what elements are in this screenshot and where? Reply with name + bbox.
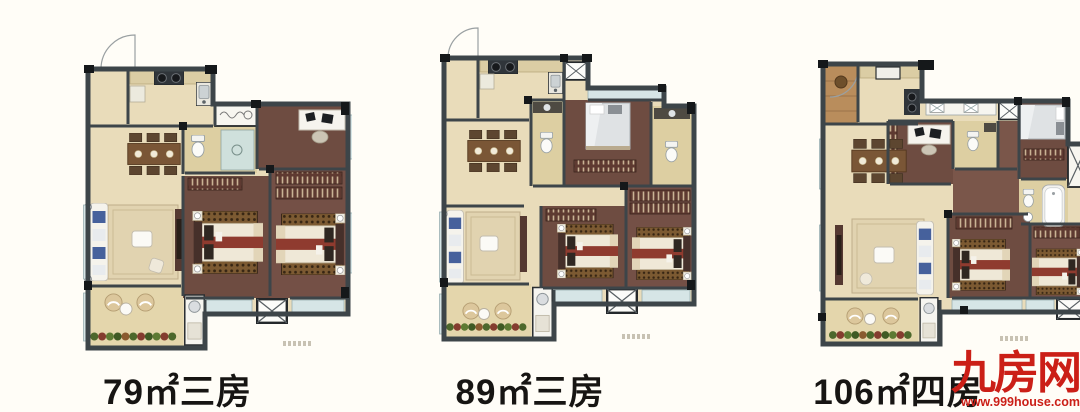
wardrobe	[630, 190, 690, 201]
floorplan-comparison-image: 79㎡三房 89㎡三房 106㎡四房 九房网 www.999house.com	[0, 0, 1080, 412]
elevator-shaft	[1057, 299, 1080, 319]
bed	[952, 239, 1010, 290]
side-table	[120, 303, 132, 315]
pouf	[860, 273, 872, 285]
bed	[276, 214, 345, 275]
bathtub	[1042, 185, 1065, 227]
toilet	[1023, 189, 1034, 207]
elevator-shaft	[607, 289, 637, 313]
laundry-closet	[185, 295, 204, 345]
wardrobe	[188, 178, 242, 190]
dining-set	[468, 130, 521, 172]
floorplan-89	[436, 26, 702, 342]
sofa	[446, 210, 463, 284]
window	[642, 290, 690, 302]
toilet	[967, 131, 978, 150]
entry-door-arc	[448, 28, 478, 58]
laundry-closet	[533, 287, 552, 337]
floorplan-79-drawing	[80, 21, 352, 355]
plan-caption-89: 89㎡三房	[390, 364, 670, 412]
plants	[446, 323, 526, 330]
bed	[632, 227, 691, 280]
door-mat	[835, 76, 847, 88]
sofa	[90, 203, 108, 281]
bed	[557, 224, 618, 278]
floorplan-106-drawing	[818, 35, 1080, 350]
laptop	[929, 128, 941, 139]
wardrobe	[1034, 227, 1080, 238]
hallway	[953, 169, 1019, 214]
wardrobe	[546, 209, 596, 221]
toilet	[540, 132, 552, 153]
dining-set	[128, 133, 181, 175]
laundry-closet	[920, 298, 938, 344]
elevator-shaft	[999, 103, 1020, 120]
laptop	[321, 113, 333, 124]
side-table	[479, 309, 490, 320]
office-chair	[312, 131, 328, 143]
side-table	[865, 314, 876, 325]
wardrobe	[574, 160, 636, 172]
fridge	[130, 86, 145, 102]
elevator-shaft	[565, 62, 587, 80]
wardrobe	[276, 187, 342, 199]
watermark-url: www.999house.com	[940, 396, 1080, 409]
shower	[221, 130, 254, 170]
floorplan-89-drawing	[436, 26, 702, 342]
floorplan-79	[80, 21, 352, 355]
balcony-chair	[847, 308, 863, 324]
bed	[1032, 249, 1080, 295]
stove	[488, 60, 518, 74]
window	[292, 300, 344, 312]
fine-print-smudge	[622, 334, 652, 339]
hallway	[998, 121, 1019, 169]
sofa	[916, 221, 933, 295]
dining-set	[852, 139, 906, 183]
plan-caption-79: 79㎡三房	[40, 364, 315, 412]
wardrobe	[630, 203, 690, 214]
vanity	[984, 123, 996, 132]
balcony-chair	[137, 294, 154, 311]
wardrobe	[276, 172, 342, 184]
balcony-chair	[463, 303, 479, 319]
wardrobe	[1024, 149, 1064, 160]
toilet	[665, 141, 677, 162]
office-chair	[922, 145, 937, 155]
fridge	[480, 74, 494, 89]
entry-door-arc	[101, 35, 135, 69]
coffee-table	[480, 236, 498, 251]
wardrobe	[956, 217, 1012, 229]
kitchen-sink	[196, 82, 212, 106]
plants	[90, 333, 176, 341]
stove	[154, 71, 184, 85]
elevator-shaft	[257, 299, 287, 323]
floorplan-106	[818, 35, 1080, 350]
fine-print-smudge	[1000, 336, 1030, 341]
tv-cabinet	[520, 216, 527, 272]
coffee-table	[132, 231, 152, 247]
balcony-chair	[883, 308, 899, 324]
kitchen-sink	[876, 67, 900, 79]
desk	[908, 125, 950, 144]
bed	[193, 211, 263, 274]
watermark: 九房网 www.999house.com	[940, 350, 1080, 409]
plants	[829, 331, 912, 339]
coffee-table	[874, 247, 894, 263]
watermark-logo: 九房网	[940, 350, 1080, 395]
balcony-chair	[105, 294, 122, 311]
fine-print-smudge	[283, 341, 313, 346]
balcony-chair	[495, 303, 511, 319]
kitchen-sink	[548, 72, 563, 94]
toilet	[192, 135, 205, 157]
